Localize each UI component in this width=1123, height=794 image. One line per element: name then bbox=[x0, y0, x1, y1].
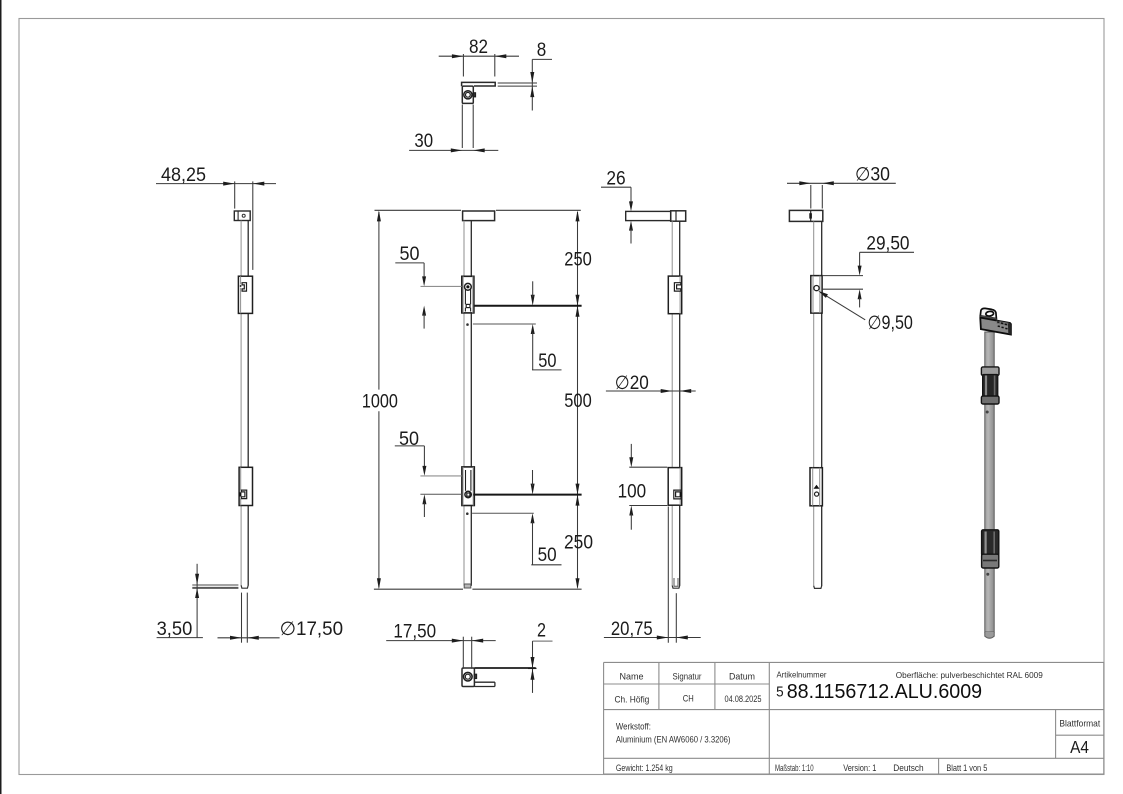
svg-text:250: 250 bbox=[564, 250, 592, 271]
svg-text:82: 82 bbox=[469, 37, 488, 58]
svg-text:Name: Name bbox=[619, 672, 643, 682]
svg-text:3,50: 3,50 bbox=[157, 619, 193, 640]
svg-text:Blatt 1 von 5: Blatt 1 von 5 bbox=[946, 763, 987, 774]
svg-text:Blattformat: Blattformat bbox=[1059, 719, 1100, 729]
svg-text:30: 30 bbox=[414, 131, 433, 152]
svg-text:∅9,50: ∅9,50 bbox=[868, 313, 913, 334]
svg-text:48,25: 48,25 bbox=[161, 165, 206, 186]
svg-text:5: 5 bbox=[776, 683, 784, 700]
svg-text:1000: 1000 bbox=[362, 391, 398, 412]
svg-text:50: 50 bbox=[399, 429, 419, 450]
svg-text:∅17,50: ∅17,50 bbox=[280, 619, 344, 640]
svg-text:Datum: Datum bbox=[729, 672, 755, 682]
svg-text:Werkstoff:: Werkstoff: bbox=[616, 722, 651, 733]
svg-text:Signatur: Signatur bbox=[673, 672, 702, 682]
svg-text:CH: CH bbox=[683, 694, 694, 705]
svg-text:Ch. Höfig: Ch. Höfig bbox=[614, 695, 649, 706]
svg-text:50: 50 bbox=[400, 244, 420, 265]
svg-text:50: 50 bbox=[538, 351, 556, 372]
svg-text:500: 500 bbox=[564, 391, 591, 412]
svg-text:250: 250 bbox=[564, 532, 593, 553]
svg-text:8: 8 bbox=[537, 40, 547, 61]
svg-text:Gewicht: 1.254 kg: Gewicht: 1.254 kg bbox=[616, 763, 673, 774]
svg-text:Version: 1: Version: 1 bbox=[843, 763, 876, 774]
svg-text:100: 100 bbox=[618, 482, 647, 503]
svg-text:26: 26 bbox=[606, 169, 625, 190]
svg-text:29,50: 29,50 bbox=[866, 234, 909, 255]
svg-text:17,50: 17,50 bbox=[393, 622, 436, 643]
svg-text:2: 2 bbox=[537, 621, 546, 642]
svg-text:A4: A4 bbox=[1070, 737, 1089, 757]
svg-text:88.1156712.ALU.6009: 88.1156712.ALU.6009 bbox=[787, 680, 982, 703]
svg-text:50: 50 bbox=[538, 545, 557, 566]
svg-text:Deutsch: Deutsch bbox=[893, 763, 924, 774]
svg-text:Artikelnummer: Artikelnummer bbox=[777, 670, 827, 680]
svg-text:Oberfläche: pulverbeschichtet: Oberfläche: pulverbeschichtet RAL 6009 bbox=[896, 670, 1043, 680]
svg-text:Aluminium (EN AW6060 / 3.3206): Aluminium (EN AW6060 / 3.3206) bbox=[616, 735, 731, 746]
svg-text:∅30: ∅30 bbox=[855, 164, 890, 185]
svg-text:04.08.2025: 04.08.2025 bbox=[725, 694, 762, 705]
svg-text:Maßstab: 1:10: Maßstab: 1:10 bbox=[775, 763, 814, 774]
